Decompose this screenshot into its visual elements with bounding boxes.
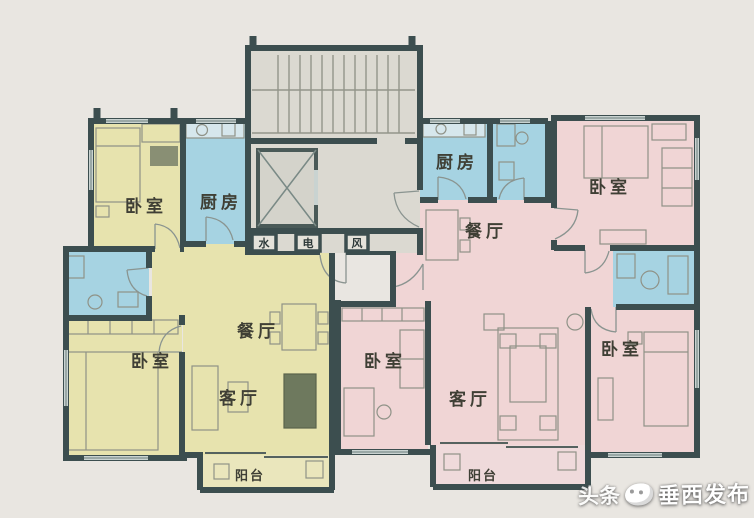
label-right-living: 客厅 [448, 389, 491, 409]
label-shaft-water: 水 [259, 236, 271, 250]
label-right-bedroom-middle: 卧室 [364, 351, 406, 371]
room-right-bedroom-middle [338, 304, 428, 452]
room-left-hallway [152, 249, 183, 318]
floor-plan-drawing: 卧室 厨房 卧室 餐厅 客厅 阳台 厨房 餐厅 卧室 卧室 客厅 卧室 阳台 水… [0, 0, 754, 518]
room-left-balcony [200, 455, 332, 490]
label-left-balcony: 阳台 [235, 468, 265, 483]
label-left-living: 客厅 [218, 388, 261, 408]
label-shaft-electric: 电 [303, 236, 314, 250]
label-right-bedroom-top: 卧室 [589, 177, 631, 197]
room-left-bedroom-main [63, 318, 182, 458]
elevator [258, 150, 316, 226]
label-left-kitchen: 厨房 [200, 192, 242, 212]
label-shaft-vent: 风 [352, 236, 363, 250]
room-right-balcony [433, 445, 588, 487]
label-right-dining: 餐厅 [465, 221, 507, 241]
label-left-dining: 餐厅 [237, 321, 279, 341]
floor-plan-photo: 卧室 厨房 卧室 餐厅 客厅 阳台 厨房 餐厅 卧室 卧室 客厅 卧室 阳台 水… [0, 0, 754, 518]
room-right-living [428, 304, 588, 445]
label-right-bedroom-bottom: 卧室 [601, 339, 643, 359]
label-left-bedroom-top: 卧室 [125, 196, 167, 216]
room-right-vestibule [393, 253, 425, 304]
room-right-bathroom-small [490, 118, 548, 200]
furniture-right-kitchen [423, 122, 485, 137]
label-right-balcony: 阳台 [468, 468, 498, 483]
room-left-bathroom [63, 252, 149, 318]
furniture-left-kitchen [186, 122, 244, 138]
label-left-bedroom-main: 卧室 [131, 351, 173, 371]
label-right-kitchen: 厨房 [436, 152, 478, 172]
